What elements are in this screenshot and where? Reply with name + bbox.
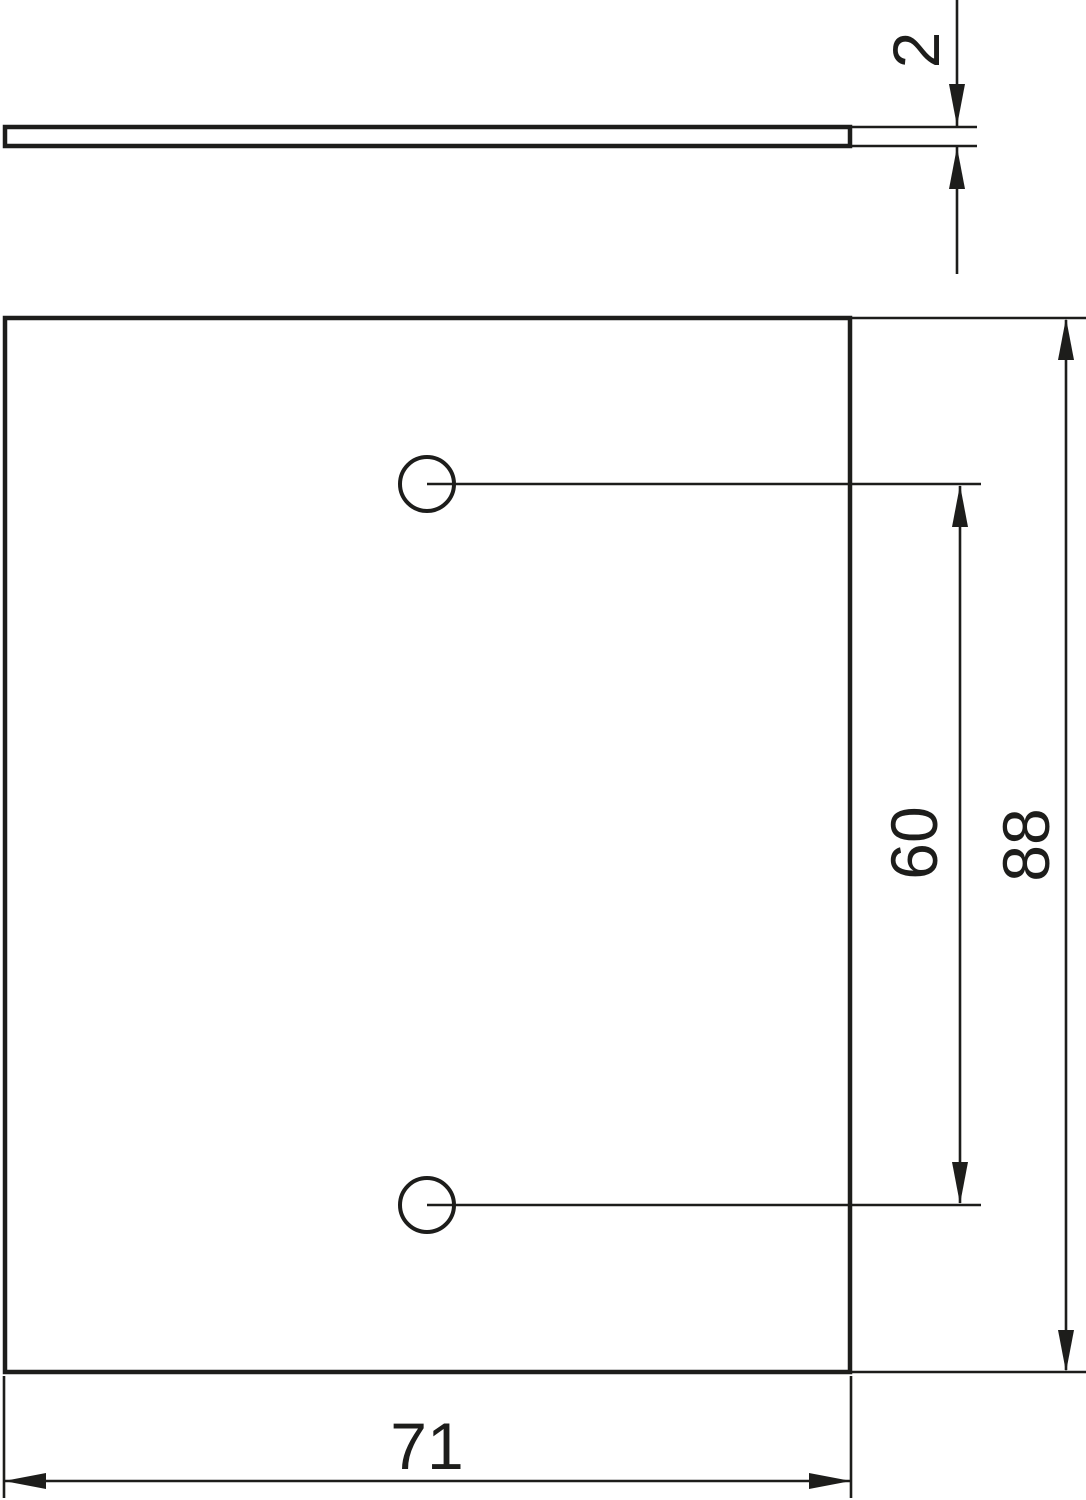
width-dimension-label: 71	[390, 1409, 463, 1483]
height-arrow-up-icon	[1058, 318, 1074, 360]
side-view-plate-outline	[5, 127, 850, 146]
hole-spacing-arrow-down-icon	[952, 1162, 968, 1204]
height-dimension-label: 88	[989, 808, 1063, 881]
thickness-dimension-label: 2	[879, 32, 953, 69]
technical-drawing: 2 60	[0, 0, 1086, 1500]
width-arrow-left-icon	[4, 1473, 46, 1489]
height-arrow-down-icon	[1058, 1330, 1074, 1372]
front-view-plate-outline	[5, 318, 850, 1372]
side-view	[5, 0, 977, 274]
thickness-arrow-up-icon	[949, 147, 965, 189]
thickness-arrow-down-icon	[949, 84, 965, 126]
hole-spacing-dimension-label: 60	[877, 806, 951, 879]
drawing-canvas: 2 60	[0, 0, 1086, 1500]
front-view	[4, 318, 1086, 1498]
hole-spacing-arrow-up-icon	[952, 485, 968, 527]
width-arrow-right-icon	[809, 1473, 851, 1489]
